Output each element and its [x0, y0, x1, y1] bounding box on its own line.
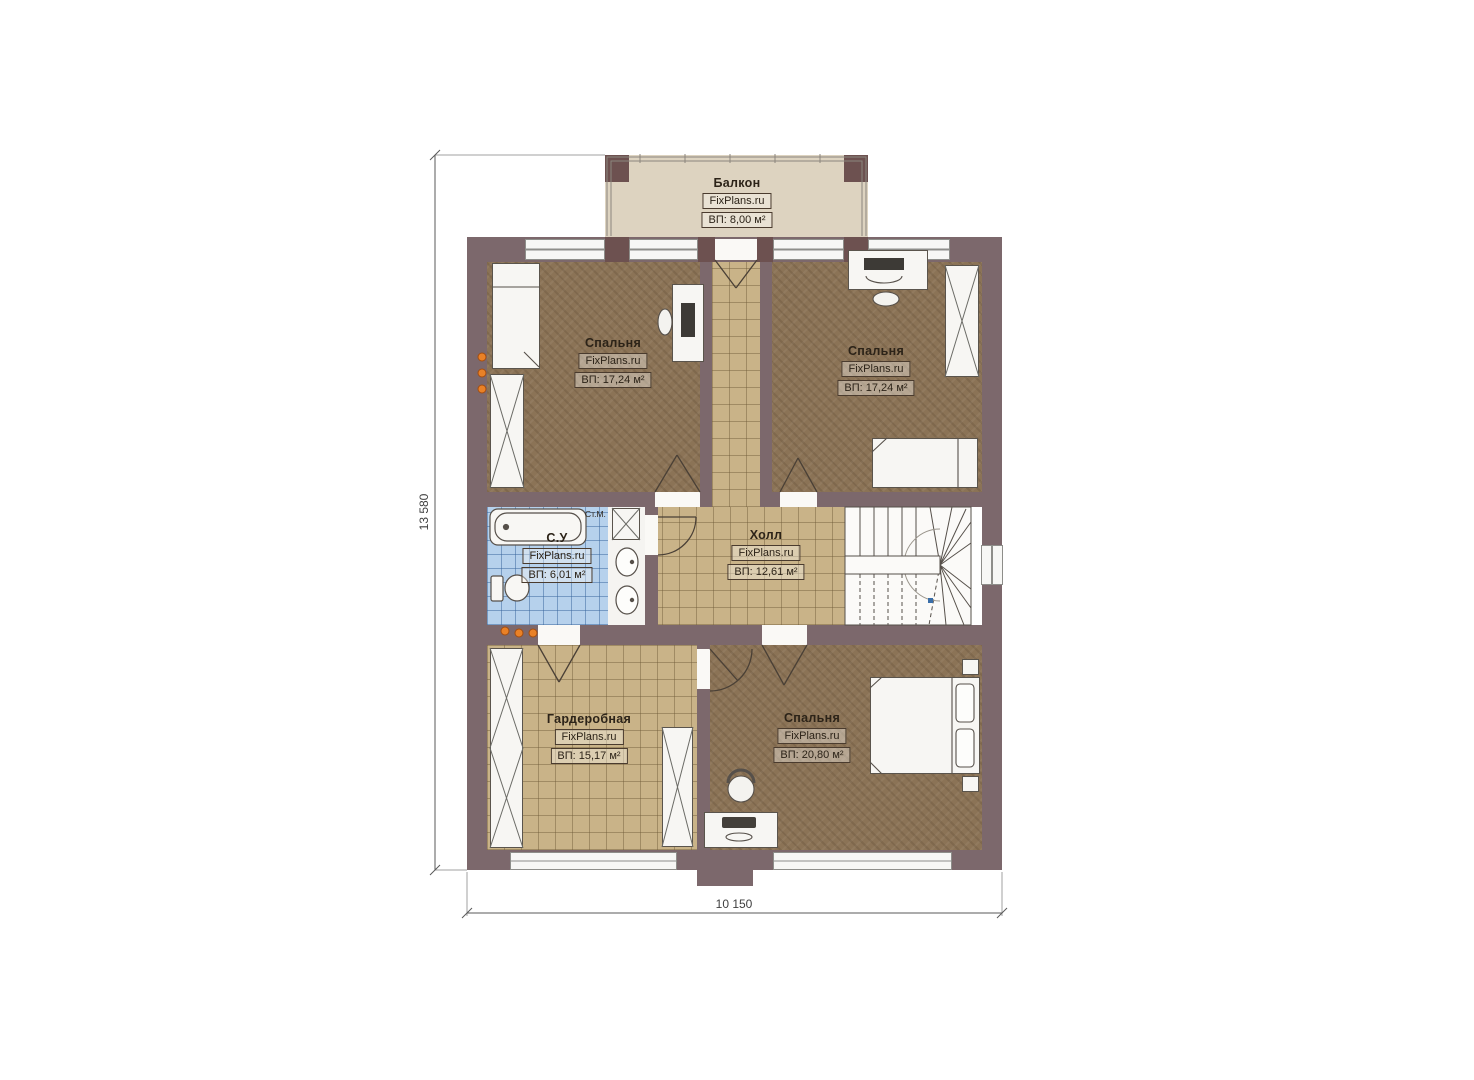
brand-box: FixPlans.ru [841, 361, 910, 377]
balcony-post-top-right [844, 155, 868, 182]
balcony-door-opening [715, 239, 757, 260]
area-box: ВП: 12,61 м² [727, 564, 804, 580]
chimney-stub [697, 870, 753, 886]
area-box: ВП: 17,24 м² [837, 380, 914, 396]
area-box: ВП: 8,00 м² [701, 212, 772, 228]
wall-mid-upper-c [760, 492, 780, 507]
room-name: Балкон [701, 176, 772, 190]
door-opening-wardrobe [538, 625, 580, 645]
room-name: Гардеробная [547, 712, 631, 726]
room-name: С.У [521, 531, 592, 545]
window-stairs-right [981, 545, 1003, 585]
wardrobe-unit-right [662, 727, 693, 847]
wardrobe-unit-tl [490, 374, 524, 488]
wall-mid-upper-d [817, 492, 982, 507]
wardrobe-unit-left [490, 648, 523, 848]
wall-mid-upper-b [700, 492, 712, 507]
brand-box: FixPlans.ru [522, 548, 591, 564]
room-label-bedroom-b: Спальня FixPlans.ru ВП: 20,80 м² [773, 711, 850, 763]
room-label-bedroom-tl: Спальня FixPlans.ru ВП: 17,24 м² [574, 336, 651, 388]
bed-top-right [872, 438, 978, 488]
area-box: ВП: 17,24 м² [574, 372, 651, 388]
nightstand-bottom [962, 776, 979, 792]
room-label-hall: Холл FixPlans.ru ВП: 12,61 м² [727, 528, 804, 580]
desk-bottom [704, 812, 778, 848]
window-balcony-right [773, 239, 844, 260]
bed-bottom [870, 677, 980, 774]
room-label-bathroom: С.У FixPlans.ru ВП: 6,01 м² [521, 531, 592, 583]
dimension-horizontal: 10 150 [716, 897, 753, 911]
area-box: ВП: 15,17 м² [550, 748, 627, 764]
wall-post-3 [757, 237, 773, 262]
wall-post-1 [605, 237, 629, 262]
room-name: Спальня [574, 336, 651, 350]
area-box: ВП: 20,80 м² [773, 747, 850, 763]
wardrobe-unit-tr [945, 265, 979, 377]
area-box: ВП: 6,01 м² [521, 567, 592, 583]
dimension-vertical: 13 580 [417, 494, 431, 531]
door-opening-wardrobe-bedroom [697, 649, 710, 689]
brand-box: FixPlans.ru [554, 729, 623, 745]
wall-mid-upper-a [487, 492, 655, 507]
window-bottom-right [773, 852, 952, 870]
window-balcony-left [629, 239, 698, 260]
door-opening-bathroom [645, 515, 658, 555]
brand-box: FixPlans.ru [777, 728, 846, 744]
door-opening-bedroom-tr [780, 492, 817, 507]
wall-left [467, 237, 487, 870]
balcony-post-top-left [605, 155, 629, 182]
window-bottom-left [510, 852, 677, 870]
brand-box: FixPlans.ru [731, 545, 800, 561]
room-label-wardrobe: Гардеробная FixPlans.ru ВП: 15,17 м² [547, 712, 631, 764]
desk-top-left [672, 284, 704, 362]
wall-post-2 [698, 237, 715, 262]
stairwell-floor [845, 507, 971, 625]
door-opening-bedroom-tl [655, 492, 700, 507]
corridor-floor [712, 260, 760, 507]
room-name: Спальня [837, 344, 914, 358]
nightstand-top [962, 659, 979, 675]
room-name: Холл [727, 528, 804, 542]
window-top-bedroom-left [525, 239, 605, 260]
washing-machine-label: Ст.М. [585, 509, 606, 519]
brand-box: FixPlans.ru [702, 193, 771, 209]
corridor-wall-right [760, 262, 772, 492]
room-name: Спальня [773, 711, 850, 725]
floor-plan-canvas: Балкон FixPlans.ru ВП: 8,00 м² Спальня F… [0, 0, 1474, 1080]
washing-machine [612, 508, 640, 540]
bed-top-left [492, 263, 540, 369]
room-label-bedroom-tr: Спальня FixPlans.ru ВП: 17,24 м² [837, 344, 914, 396]
brand-box: FixPlans.ru [578, 353, 647, 369]
room-label-balcony: Балкон FixPlans.ru ВП: 8,00 м² [701, 176, 772, 228]
door-opening-bedroom-b [762, 625, 807, 645]
desk-top-right [848, 250, 928, 290]
